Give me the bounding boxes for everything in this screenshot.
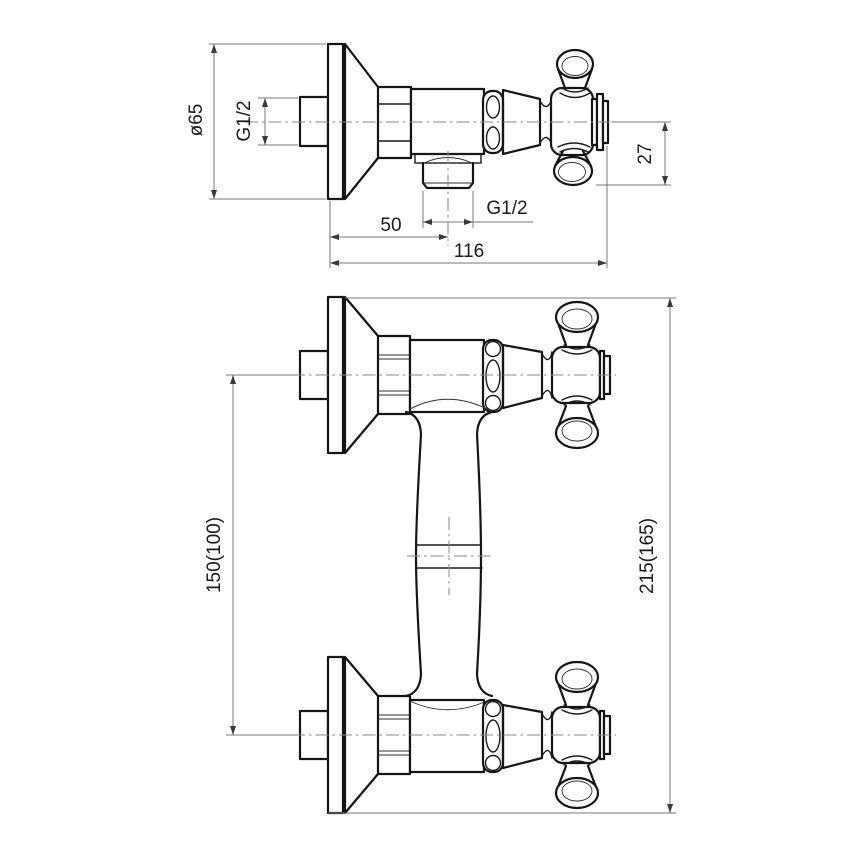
dim-height-arrow-top	[667, 298, 673, 307]
dim-depth-label: 116	[454, 241, 484, 262]
dim-outlet-distance-arrow-left	[330, 234, 339, 240]
dim-depth-arrow-right	[598, 260, 607, 266]
dim-outlet-distance-label: 50	[380, 215, 401, 236]
connecting-column	[406, 399, 492, 710]
dim-height-label: 215(165)	[637, 518, 658, 594]
dim-height-arrow-bottom	[667, 804, 673, 813]
front-handle-cone	[503, 345, 542, 408]
column-left-edge	[406, 412, 421, 696]
dim-centers-label: 150(100)	[204, 517, 225, 593]
dim-outlet-thread-arrow-right	[464, 219, 473, 225]
dim-flange-diameter-label: ø65	[186, 104, 207, 137]
dim-outlet-thread-label: G1/2	[486, 198, 527, 219]
column-right-edge	[477, 412, 492, 696]
dim-handle-offset-arrow-bottom	[662, 176, 668, 185]
valve-assembly-top	[245, 297, 616, 453]
dim-centers-ext	[226, 375, 298, 735]
side-view	[245, 44, 616, 246]
dim-flange-diameter-arrow-bottom	[211, 190, 217, 199]
dim-handle-offset-label: 27	[635, 143, 656, 164]
dim-handle-offset-arrow-top	[662, 122, 668, 131]
drawing-canvas: ø65 G1/2 27 G1/2 50 116	[0, 0, 868, 868]
technical-drawing: ø65 G1/2 27 G1/2 50 116	[0, 0, 868, 868]
dim-inlet-thread-arrow-bottom	[262, 136, 268, 145]
side-knob-bottom-face	[554, 157, 592, 185]
valve-assembly-bottom	[245, 657, 616, 813]
dim-centers-arrow-top	[230, 375, 236, 384]
dim-inlet-thread-label: G1/2	[234, 100, 255, 141]
dim-outlet-distance-arrow-right	[439, 234, 448, 240]
dim-flange-diameter-arrow-top	[211, 44, 217, 53]
dim-outlet-thread-arrow-left	[423, 219, 432, 225]
side-view-dimensions: ø65 G1/2 27 G1/2 50 116	[186, 44, 671, 268]
front-valve-body	[410, 340, 484, 412]
dim-inlet-thread-arrow-top	[262, 98, 268, 107]
dim-depth-arrow-left	[330, 260, 339, 266]
dim-centers-arrow-bottom	[230, 726, 236, 735]
